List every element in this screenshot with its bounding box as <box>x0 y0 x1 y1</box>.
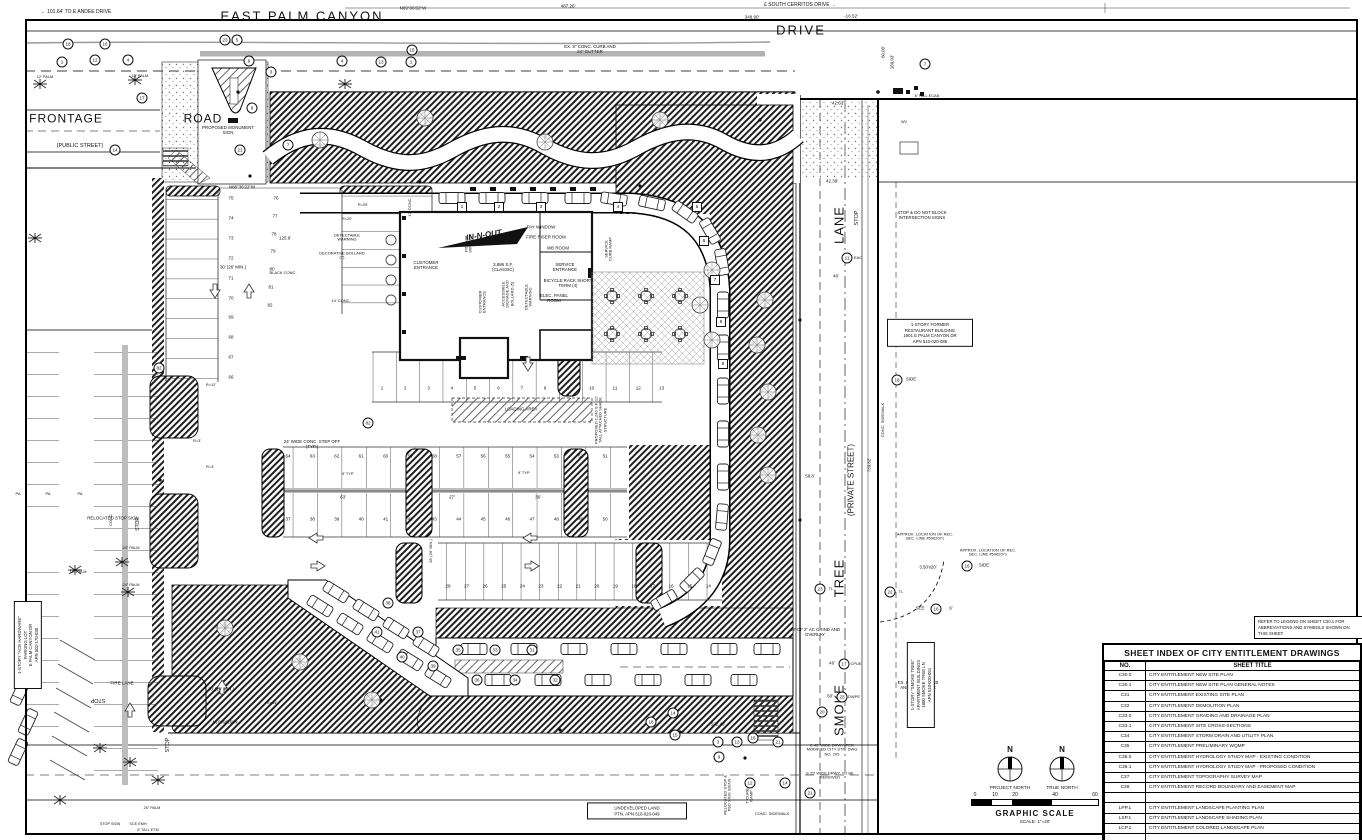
plan-label: 125.6' <box>279 235 291 240</box>
parking-stall-number: 61 <box>359 454 364 459</box>
sheet-title: CITY ENTITLEMENT DEMOLITION PLAN <box>1146 701 1360 711</box>
parking-stall-number: 27 <box>464 584 469 589</box>
plan-label: CUSTOMER ENTRANCE <box>405 261 447 271</box>
keynote-callout: 31 <box>527 645 538 656</box>
plan-label: STOP & DO NOT BLOCK INTERSECTION SIGNS <box>893 211 951 221</box>
plan-label: SIDE <box>979 564 989 569</box>
compass-icon <box>995 754 1025 784</box>
sheet-number: C37 <box>1105 772 1146 782</box>
plan-label: PROPOSED MONUMENT SIGN <box>202 126 254 136</box>
parking-stall-number: 70 <box>228 295 233 300</box>
plan-label: 24' WIDE CONC. STEP OFF (TYP.) <box>283 440 341 450</box>
sheet-index-row: C31CITY ENTITLEMENT EXISTING SITE PLAN <box>1105 691 1360 701</box>
parking-stall-number: 44 <box>456 517 461 522</box>
parking-stall-number: 58 <box>432 454 437 459</box>
parking-stall-number: 62 <box>334 454 339 459</box>
plan-label: EAST PALM CANYON <box>221 10 384 25</box>
plan-label: R=20' <box>342 217 352 221</box>
sheet-number: C38 <box>1105 783 1146 793</box>
parking-stall-number: 20 <box>594 584 599 589</box>
plan-label: PAY WINDOW <box>527 226 556 231</box>
plan-label: PA <box>77 492 82 496</box>
parking-stall-number: 4 <box>451 386 454 391</box>
parking-stall-number: 69 <box>228 315 233 320</box>
keynote-callout: 16 <box>100 39 111 50</box>
parking-stall-number: 57 <box>456 454 461 459</box>
parking-stall-number: 73 <box>228 235 233 240</box>
plan-label: LOADING AREA <box>505 408 538 413</box>
plan-label: (PRIVATE STREET) <box>848 444 857 516</box>
parking-stall-number: 2 <box>404 386 407 391</box>
parking-stall-number: 9 <box>567 386 570 391</box>
plan-label: STOP SIGN <box>100 822 121 826</box>
plan-label: ← 101.64' TO E ANDEE DRIVE <box>41 10 112 16</box>
sheet-index-row <box>1105 793 1360 803</box>
sheet-title: CITY ENTITLEMENT PRELIMINARY WQMP <box>1146 742 1360 752</box>
scale-tick-label: 0 <box>974 792 977 798</box>
parking-stall-number: 48 <box>554 517 559 522</box>
keynote-callout: 20 <box>817 707 828 718</box>
sheet-index-row: C33.1CITY ENTITLEMENT SITE CROSS-SECTION… <box>1105 721 1360 731</box>
keynote-callout: 14 <box>110 145 121 156</box>
plan-label: BICYCLE RACK SHORT TERM (4) <box>540 279 596 289</box>
plan-label: CUSTOMER ENTRANCE <box>479 283 488 321</box>
plan-label: 739.82' <box>868 458 873 472</box>
drive-thru-stall-number: 8 <box>716 317 726 327</box>
plan-label: 9' TYP. <box>518 471 530 475</box>
keynote-callout: 17 <box>137 93 148 104</box>
drive-thru-stall-number: 6 <box>699 236 709 246</box>
col-header-title: SHEET TITLE <box>1146 662 1360 671</box>
plan-label: R=25' <box>358 203 368 207</box>
drive-thru-stall-number: 7 <box>710 275 720 285</box>
plan-label: 16" PALM <box>69 570 86 574</box>
plan-label: £ SOUTH CERRITOS DRIVE → <box>764 3 836 9</box>
plan-label: DETECTABLE WARNING <box>324 234 370 243</box>
plan-label: ACCESSIBLE SIGNAGE AND BOLLARD (5) <box>501 272 514 316</box>
plan-label: DWPE <box>848 695 860 699</box>
plan-label: 6' TALL ECAB <box>915 94 939 98</box>
parking-stall-number: 42 <box>407 517 412 522</box>
sheet-index-row: C35CITY ENTITLEMENT PRELIMINARY WQMP <box>1105 742 1360 752</box>
parking-stall-number: 46 <box>505 517 510 522</box>
plan-label: PROPOSED 1,246 S.F. 12' TALL ATTACHED SH… <box>594 392 607 448</box>
plan-label: 36' <box>535 496 541 501</box>
sheet-title: CITY ENTITLEMENT NEW SITE PLAN <box>1146 671 1360 681</box>
keynote-callout: 38 <box>383 598 394 609</box>
plan-label: PA <box>45 492 50 496</box>
plan-label: EAC <box>854 256 862 260</box>
plan-label: SEE <box>916 607 925 612</box>
drive-thru-stall-number: 2 <box>494 202 504 212</box>
parking-stall-number: 76 <box>273 196 278 201</box>
parking-stall-number: 28 <box>445 584 450 589</box>
parking-stall-number: 8 <box>544 386 547 391</box>
plan-label: CONC. SIDEWALK <box>755 812 790 816</box>
plan-label: STOP <box>854 211 860 226</box>
keynote-callout: 34 <box>510 675 521 686</box>
plan-label: 24" PALM <box>122 546 139 550</box>
sheet-title <box>1146 793 1360 803</box>
parking-stall-number: 7 <box>521 386 524 391</box>
keynote-callout: 7 <box>283 140 294 151</box>
keynote-callout: 36 <box>472 675 483 686</box>
plan-label: N89°06'02"W <box>400 5 427 10</box>
parking-stall-number: 45 <box>481 517 486 522</box>
sheet-index-row <box>1105 834 1360 840</box>
sheet-number: C34 <box>1105 732 1146 742</box>
sheet-index-title: SHEET INDEX OF CITY ENTITLEMENT DRAWINGS <box>1104 645 1360 661</box>
parking-stall-number: 75 <box>228 196 233 201</box>
keynote-callout: 41 <box>372 627 383 638</box>
plan-label: FIRE LANE <box>110 680 133 685</box>
keynote-callout: 4 <box>123 55 134 66</box>
boxed-note: 1-STORY FORMERRESTAURANT BUILDING1901 E … <box>887 319 973 347</box>
plan-label: 50' <box>827 695 833 700</box>
plan-label: R=15' <box>267 701 277 705</box>
sheet-title <box>1146 834 1360 840</box>
keynote-callout: 22 <box>885 587 896 598</box>
plan-label: 27' <box>449 496 455 501</box>
plan-label: APPROX. LOCATION OF REC. SEC. LINE #5062… <box>893 533 957 542</box>
graphic-scale: 010204060 GRAPHIC SCALE SCALE: 1"=20' <box>971 792 1099 824</box>
plan-label: CONC <box>109 514 113 526</box>
keynote-callout: 40 <box>397 652 408 663</box>
plan-label: 63' <box>340 496 346 501</box>
parking-stall-number: 17 <box>650 584 655 589</box>
plan-label: 348.90' <box>745 14 760 19</box>
plan-label: STOP <box>165 738 171 753</box>
sheet-title: CITY ENTITLEMENT LANDSCAPE PLANTING PLAN <box>1146 803 1360 813</box>
compass-icon <box>1047 754 1077 784</box>
plan-label: 6' <box>949 607 952 612</box>
keynote-callout: 16 <box>962 561 973 572</box>
parking-stall-number: 60 <box>383 454 388 459</box>
parking-stall-number: 77 <box>272 213 277 218</box>
boxed-note: 1-STORY "SMOKE TREE"APARTMENT BUILDINGS1… <box>907 642 935 728</box>
plan-label: TL <box>899 590 904 594</box>
keynote-callout: 18 <box>892 375 903 386</box>
plan-label: 30' (24' MIN.) <box>203 688 239 693</box>
parking-stall-number: 68 <box>228 335 233 340</box>
plan-label: 46' <box>829 662 835 667</box>
sheet-number: LCP.1 <box>1105 823 1146 833</box>
sheet-index-row: LPP.1CITY ENTITLEMENT LANDSCAPE PLANTING… <box>1105 803 1360 813</box>
true-north-label: TRUE NORTH <box>1032 786 1092 791</box>
drive-thru-stall-number: 4 <box>613 202 623 212</box>
parking-stall-number: 26 <box>483 584 488 589</box>
parking-stall-number: 56 <box>481 454 486 459</box>
parking-stall-number: 52 <box>578 454 583 459</box>
keynote-callout: 21 <box>805 788 816 799</box>
scale-tick-label: 40 <box>1052 792 1058 798</box>
parking-stall-number: 41 <box>383 517 388 522</box>
plan-label: 9' TYP. <box>342 472 354 476</box>
parking-stall-number: 12 <box>636 386 641 391</box>
parking-stall-number: 24 <box>520 584 525 589</box>
sheet-title: CITY ENTITLEMENT LANDSCAPE SHADING PLAN <box>1146 813 1360 823</box>
drive-thru-stall-number: 1 <box>457 202 467 212</box>
sheet-index-table: SHEET INDEX OF CITY ENTITLEMENT DRAWINGS… <box>1102 643 1362 840</box>
plan-label: FRONTAGE <box>29 112 103 125</box>
keynote-callout: 13 <box>376 57 387 68</box>
parking-stall-number: 39 <box>334 517 339 522</box>
parking-stall-number: 66 <box>228 375 233 380</box>
keynote-callout: 23 <box>837 692 848 703</box>
plan-label: 14' CONC. <box>329 299 353 303</box>
parking-stall-number: 64 <box>285 454 290 459</box>
parking-stall-number: 1 <box>381 386 384 391</box>
parking-stall-number: 49 <box>578 517 583 522</box>
keynote-callout: 5 <box>232 35 243 46</box>
plan-label: 30' (26' MIN.) <box>214 266 252 271</box>
scale-bar <box>971 799 1099 806</box>
scale-title: GRAPHIC SCALE <box>971 809 1099 818</box>
sheet-index-row: C37CITY ENTITLEMENT TOPOGRAPHY SURVEY MA… <box>1105 772 1360 782</box>
parking-stall-number: 10 <box>589 386 594 391</box>
keynote-callout: 21 <box>773 737 784 748</box>
plan-label: E 29' WIDE DRWY. TO BE REMOVED <box>801 772 859 781</box>
sheet-number: C36.0 <box>1105 752 1146 762</box>
keynote-callout: 15 <box>407 45 418 56</box>
plan-label: SCE EMH <box>129 822 146 826</box>
plan-label: 487.26' <box>561 3 576 8</box>
sheet-index-row: C36.0CITY ENTITLEMENT HYDROLOGY STUDY MA… <box>1105 752 1360 762</box>
sheet-number: C33.1 <box>1105 721 1146 731</box>
plan-label: LANE <box>833 206 848 244</box>
plan-label: R=3' <box>206 465 214 469</box>
sheet-number: LSP.1 <box>1105 813 1146 823</box>
sheet-index-row: C33.0CITY ENTITLEMENT GRADING AND DRAINA… <box>1105 711 1360 721</box>
keynote-callout: 13 <box>732 737 743 748</box>
keynote-callout: 82 <box>363 418 374 429</box>
sheet-number: LPP.1 <box>1105 803 1146 813</box>
parking-stall-number: 37 <box>285 517 290 522</box>
keynote-callout: 33 <box>490 645 501 656</box>
plan-label: 3.50'x20' <box>919 566 936 571</box>
sheet-title: CITY ENTITLEMENT HYDROLOGY STUDY MAP - P… <box>1146 762 1360 772</box>
parking-stall-number: 40 <box>359 517 364 522</box>
keynote-callout: 8 <box>247 103 258 114</box>
plan-label: 26" PALM <box>144 806 161 810</box>
plan-label: 24" PALM <box>122 583 139 587</box>
parking-stall-number: 81 <box>268 285 273 290</box>
parking-stall-number: 11 <box>613 386 618 391</box>
plan-label: WV <box>901 120 907 124</box>
plan-label: 12' CONC. <box>408 196 412 218</box>
plan-label: R=12' <box>206 383 216 387</box>
parking-stall-number: 38 <box>310 517 315 522</box>
keynote-callout: 7 <box>920 59 931 70</box>
plan-label: 60.00' <box>882 46 887 58</box>
plan-label: STOP <box>91 697 106 703</box>
parking-stall-number: 13 <box>659 386 664 391</box>
parking-stall-number: 43 <box>432 517 437 522</box>
parking-stall-number: 55 <box>505 454 510 459</box>
sheet-number: C31 <box>1105 691 1146 701</box>
parking-stall-number: 79 <box>270 249 275 254</box>
parking-stall-number: 23 <box>538 584 543 589</box>
keynote-callout: 12 <box>90 55 101 66</box>
scale-tick-label: 20 <box>1012 792 1018 798</box>
parking-stall-number: 63 <box>310 454 315 459</box>
keynote-callout: 15 <box>670 730 681 741</box>
plan-label: ROAD <box>184 112 223 125</box>
sheet-title: CITY ENTITLEMENT EXISTING SITE PLAN <box>1146 691 1360 701</box>
sheet-number: C33.0 <box>1105 711 1146 721</box>
parking-stall-number: 54 <box>529 454 534 459</box>
plan-label: CPUE <box>850 662 861 666</box>
parking-stall-number: 51 <box>603 454 608 459</box>
sheet-number: C32 <box>1105 701 1146 711</box>
north-letter: N <box>980 745 1040 754</box>
plan-label: 189.93' <box>891 55 896 69</box>
sheet-title: CITY ENTITLEMENT COLORED LANDSCAPE PLAN <box>1146 823 1360 833</box>
sheet-title: CITY ENTITLEMENT NEW SITE PLAN GENERAL N… <box>1146 681 1360 691</box>
project-north-label: PROJECT NORTH <box>980 786 1040 791</box>
legend-note: REFER TO LEGEND ON SHEET C30.1 FOR ABBRE… <box>1254 616 1362 639</box>
plan-label: EX. 8" CONC. CURB AND 24" GUTTER <box>564 45 616 55</box>
sheet-title: CITY ENTITLEMENT TOPOGRAPHY SURVEY MAP <box>1146 772 1360 782</box>
keynote-callout: 37 <box>413 627 424 638</box>
sheet-index-row: C30.1CITY ENTITLEMENT NEW SITE PLAN GENE… <box>1105 681 1360 691</box>
sheet-title: CITY ENTITLEMENT SITE CROSS-SECTIONS <box>1146 721 1360 731</box>
plan-label: TREE <box>833 559 848 598</box>
north-letter: N <box>1032 745 1092 754</box>
sheet-number: C36.1 <box>1105 762 1146 772</box>
drive-thru-stall-number: 3 <box>536 202 546 212</box>
scale-tick-label: 60 <box>1092 792 1098 798</box>
sheet-index-row: C34CITY ENTITLEMENT STORM DRAIN AND UTIL… <box>1105 732 1360 742</box>
keynote-callout: 23 <box>815 584 826 595</box>
parking-stall-number: 47 <box>529 517 534 522</box>
parking-stall-number: 25 <box>501 584 506 589</box>
plan-label: -16.52' <box>844 13 858 18</box>
parking-stall-number: 22 <box>557 584 562 589</box>
sheet-number: C30.0 <box>1105 671 1146 681</box>
parking-stall-number: 19 <box>613 584 618 589</box>
keynote-callout: 14 <box>780 778 791 789</box>
sheet-index-row: C30.0CITY ENTITLEMENT NEW SITE PLAN <box>1105 671 1360 681</box>
plan-label: 58.8' <box>805 475 814 480</box>
plan-label: 12' PALM <box>132 74 148 78</box>
site-plan-sheet: EAST PALM CANYONDRIVE← 101.64' TO E ANDE… <box>0 0 1362 840</box>
boxed-note: UNDEVELOPED LANDPTN. APN 510-020-049 <box>587 802 687 819</box>
keynote-callout: 35 <box>453 645 464 656</box>
scale-tick-label: 10 <box>992 792 998 798</box>
keynote-callout: 16 <box>748 733 759 744</box>
plan-label: E 42' WIDE DRWY. PER MODIFIED CITY STD. … <box>803 743 861 756</box>
plan-label: 42.39' <box>826 178 838 183</box>
plan-label: 28' (26' MIN.) <box>429 532 433 570</box>
plan-label: STOP <box>136 517 142 531</box>
sheet-index-row: LSP.1CITY ENTITLEMENT LANDSCAPE SHADING … <box>1105 813 1360 823</box>
keynote-callout: 1 <box>57 57 68 68</box>
sheet-title: CITY ENTITLEMENT HYDROLOGY STUDY MAP - E… <box>1146 752 1360 762</box>
keynote-callout: 3 <box>266 67 277 78</box>
parking-stall-number: 78 <box>271 231 276 236</box>
plan-label: APPROX. LOCATION OF REC. SEC. LINE #5062… <box>956 549 1020 558</box>
plan-label: 42.63' <box>832 100 844 105</box>
plan-label: PA <box>15 492 20 496</box>
plan-label: DETECTABLE WARNING <box>525 278 534 316</box>
parking-stall-number: 16 <box>669 584 674 589</box>
keynote-callout: 32 <box>550 675 561 686</box>
parking-stall-number: 18 <box>631 584 636 589</box>
keynote-callout: 18 <box>63 39 74 50</box>
parking-stall-number: 21 <box>576 584 581 589</box>
sheet-index-row: C36.1CITY ENTITLEMENT HYDROLOGY STUDY MA… <box>1105 762 1360 772</box>
scale-ticks: 010204060 <box>971 792 1099 799</box>
plan-label: N89°58'00"W <box>213 719 238 724</box>
parking-stall-number: 82 <box>267 302 272 307</box>
keynote-callout: 23 <box>220 35 231 46</box>
plan-label: 522.43' <box>711 721 726 726</box>
plan-label: 6' TALL ETM <box>137 828 159 832</box>
keynote-callout: 16 <box>931 604 942 615</box>
keynote-callout: 17 <box>839 659 850 670</box>
parking-stall-number: 14 <box>706 584 711 589</box>
plan-label: RELOCATED STOP & PED XING SIGNS <box>724 774 733 816</box>
keynote-callout: 9 <box>714 752 725 763</box>
sheet-index-row: C32CITY ENTITLEMENT DEMOLITION PLAN <box>1105 701 1360 711</box>
keynote-callout: 4 <box>337 56 348 67</box>
sheet-title: CITY ENTITLEMENT STORM DRAIN AND UTILITY… <box>1146 732 1360 742</box>
drive-thru-stall-number: 9 <box>718 359 728 369</box>
parking-stall-number: 15 <box>687 584 692 589</box>
plan-label: WB ROOM <box>547 247 569 252</box>
parking-stall-number: 53 <box>554 454 559 459</box>
sheet-title: CITY ENTITLEMENT RECORD BOUNDARY AND EAS… <box>1146 783 1360 793</box>
plan-label: DECORATIVE BOLLARD (7) <box>319 252 365 261</box>
sheet-title: CITY ENTITLEMENT GRADING AND DRAINAGE PL… <box>1146 711 1360 721</box>
keynote-callout: 39 <box>428 661 439 672</box>
parking-stall-number: 71 <box>228 275 233 280</box>
keynote-callout: 11 <box>842 253 853 264</box>
parking-stall-number: 67 <box>228 355 233 360</box>
parking-stall-number: 80 <box>269 267 274 272</box>
plan-label: PICK-UP WINDOW <box>465 228 474 260</box>
sheet-number: C35 <box>1105 742 1146 752</box>
parking-stall-number: 50 <box>603 517 608 522</box>
plan-label: ELEC. PANEL ROOM <box>535 294 573 304</box>
keynote-callout: 3 <box>713 737 724 748</box>
keynote-callout: 6 <box>244 56 255 67</box>
sheet-index-row: LCP.1CITY ENTITLEMENT COLORED LANDSCAPE … <box>1105 823 1360 833</box>
keynote-callout: 18 <box>646 717 657 728</box>
project-north-arrow: N PROJECT NORTH <box>980 745 1040 791</box>
sheet-number <box>1105 793 1146 803</box>
keynote-callout: 82 <box>154 363 165 374</box>
parking-stall-number: 5 <box>474 386 477 391</box>
keynote-callout: 14 <box>668 708 679 719</box>
keynote-callout: 12 <box>745 778 756 789</box>
parking-stall-number: 6 <box>497 386 500 391</box>
plan-label: (PUBLIC STREET) <box>57 143 104 149</box>
plan-label: DRIVE <box>776 24 826 39</box>
true-north-arrow: N TRUE NORTH <box>1032 745 1092 791</box>
plan-label: TL <box>829 587 834 591</box>
scale-subtitle: SCALE: 1"=20' <box>971 819 1099 824</box>
plan-label: SERVICE ENTRANCE <box>544 263 586 273</box>
parking-stall-number: 59 <box>407 454 412 459</box>
plan-label: SIDE <box>906 378 916 383</box>
sheet-number: C30.1 <box>1105 681 1146 691</box>
keynote-callout: 21 <box>235 145 246 156</box>
parking-stall-number: 74 <box>228 215 233 220</box>
plan-label: CONC. SIDEWALK <box>881 403 885 438</box>
parking-stall-number: 72 <box>228 255 233 260</box>
